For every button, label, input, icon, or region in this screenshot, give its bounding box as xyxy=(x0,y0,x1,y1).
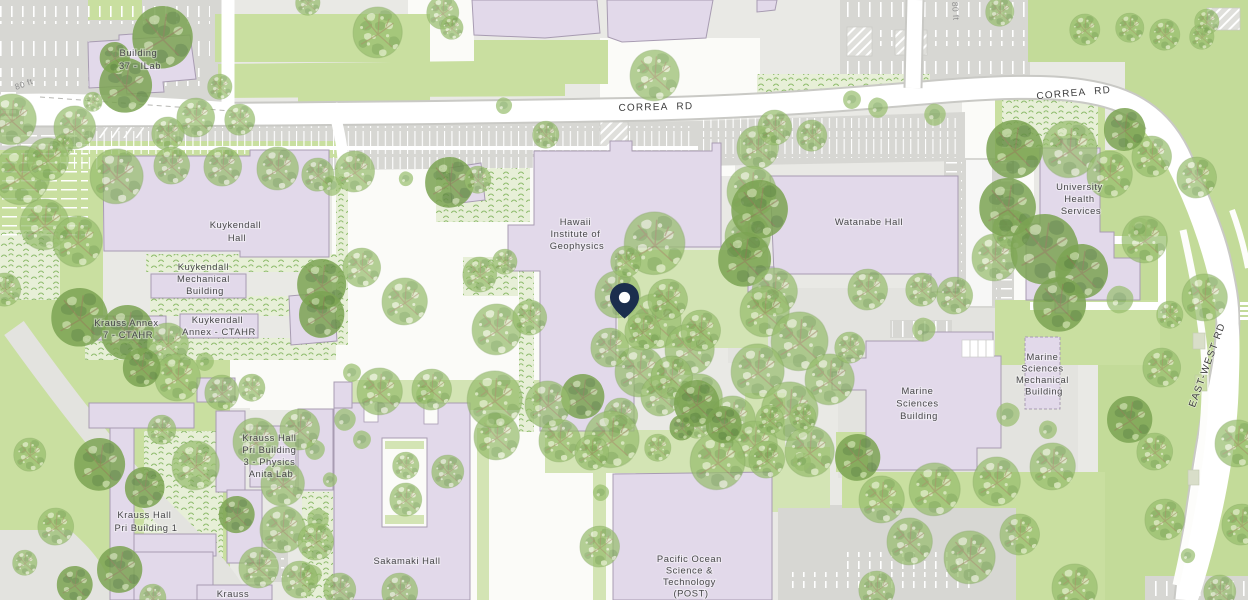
svg-text:Kuykendall Annex - CTAHR: Kuykendall Annex - CTAHR xyxy=(182,314,256,337)
svg-text:Marine Sciences Building: Marine Sciences Building xyxy=(896,385,942,421)
svg-text:80 ft: 80 ft xyxy=(950,1,961,20)
svg-text:Krauss Hall Pri Building 3 -: Krauss Hall Pri Building 3 - Physics Ani… xyxy=(242,432,299,479)
svg-text:Sakamaki Hall: Sakamaki Hall xyxy=(373,555,440,566)
svg-text:Krauss: Krauss xyxy=(217,588,249,599)
svg-text:CORREA RD: CORREA RD xyxy=(618,101,693,114)
svg-text:Watanabe Hall: Watanabe Hall xyxy=(835,216,903,227)
svg-text:Krauss Annex 7 - CTAHR: Krauss Annex 7 - CTAHR xyxy=(94,317,162,340)
